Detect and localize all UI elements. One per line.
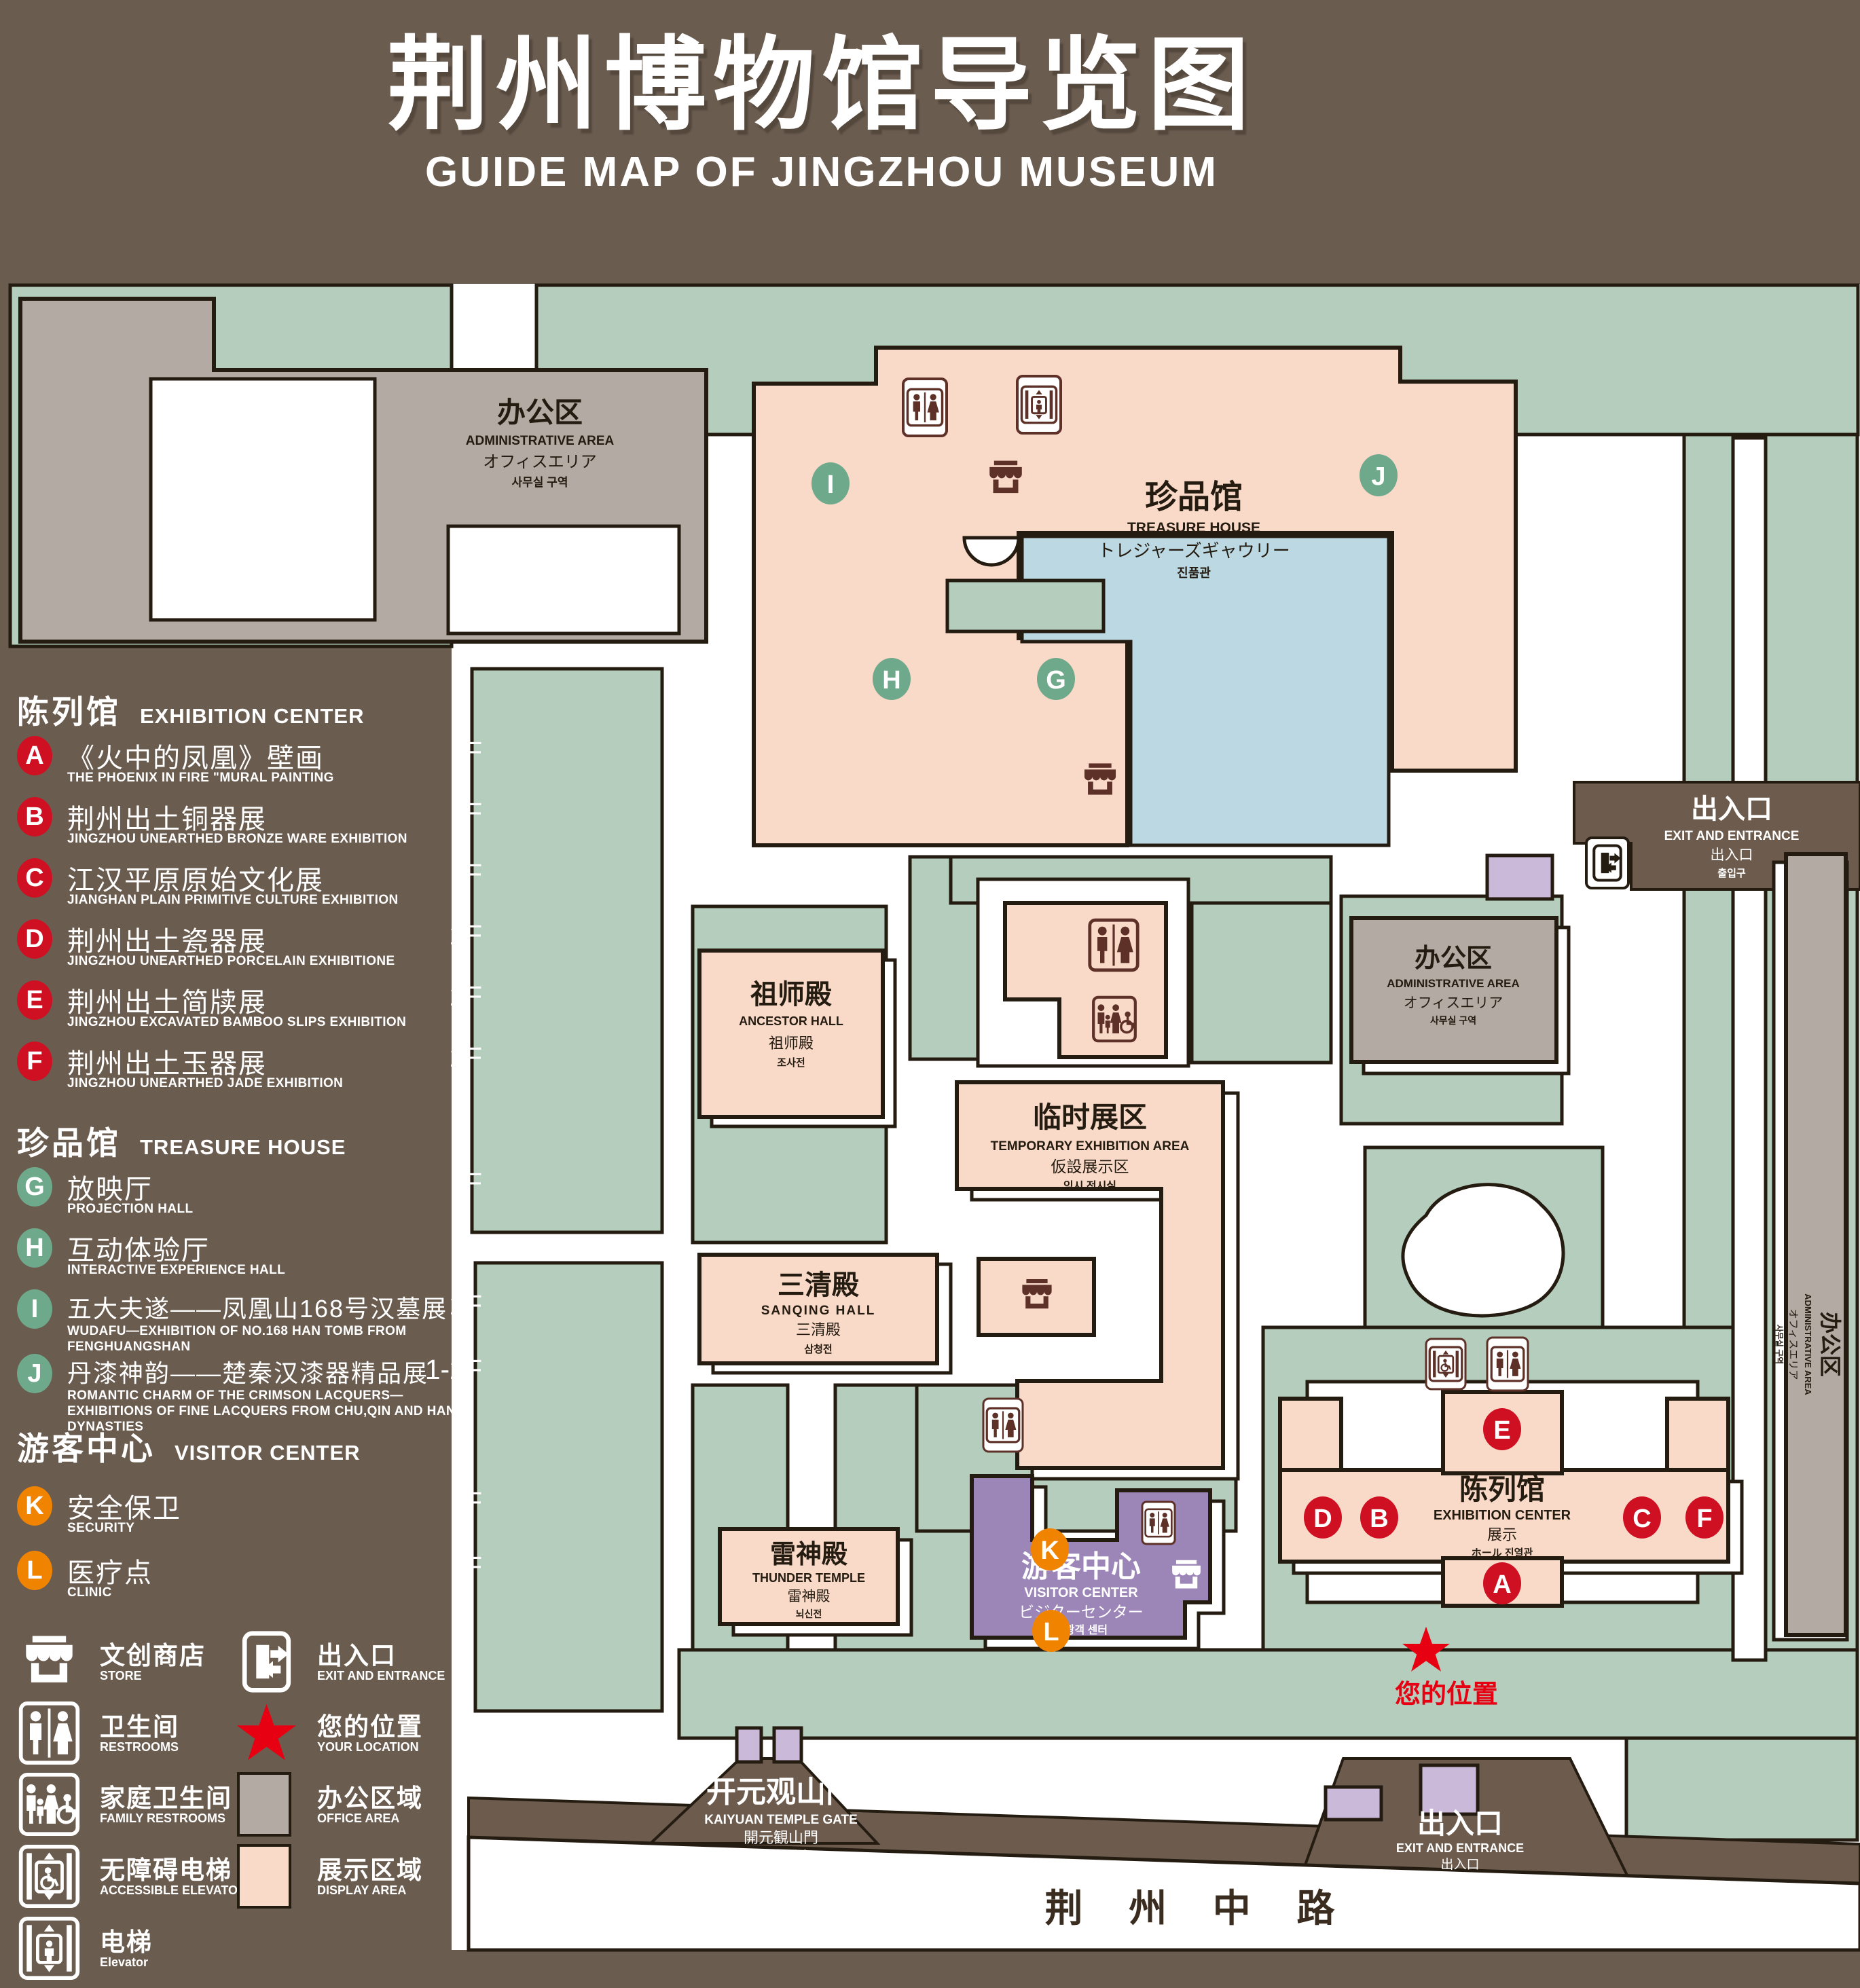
map-badge-A: A <box>1483 1562 1521 1604</box>
store-icon <box>17 1630 81 1694</box>
map-badge-K: K <box>1031 1528 1069 1570</box>
exit-bottom-label-kr: 출입구 <box>1448 1874 1472 1884</box>
map-badge-G: G <box>1037 658 1075 700</box>
exit-top-label-kr: 출입구 <box>1717 868 1746 879</box>
svg-text:H: H <box>882 666 900 695</box>
admin-tl-label-zh: 办公区 <box>497 397 583 428</box>
svg-text:F: F <box>1696 1505 1712 1533</box>
visitor-label-en: VISITOR CENTER <box>1024 1585 1138 1600</box>
page-title: 荆州博物馆导览图 <box>0 3 1643 150</box>
admin-tl-label-kr: 사무실 구역 <box>512 476 568 489</box>
thunder-label-en: THUNDER TEMPLE <box>752 1571 865 1585</box>
legend-item-G: G 放映厅 1F PROJECTION HALL <box>17 1171 482 1230</box>
legend-item-F: F 荆州出土玉器展 2F JINGZHOU UNEARTHED JADE EXH… <box>17 1046 482 1104</box>
svg-text:G: G <box>1046 666 1066 695</box>
building-admin-right: 办公区 ADMINISTRATIVE AREA オフィスエリア 사무실 구역 <box>1774 854 1847 1640</box>
temporary-label-en: TEMPORARY EXHIBITION AREA <box>991 1139 1190 1154</box>
admin-tl-label-en: ADMINISTRATIVE AREA <box>466 434 615 448</box>
thunder-label-zh: 雷神殿 <box>770 1541 847 1569</box>
pond-green-bar <box>947 581 1104 631</box>
building-ancestor-hall: 祖师殿 ANCESTOR HALL 祖师殿 조사전 <box>699 951 895 1126</box>
badge-A: A <box>17 736 52 775</box>
your-location-label: 您的位置 <box>1395 1680 1498 1709</box>
gate-label-jp: 開元観山門 <box>744 1829 818 1846</box>
building-admin-mid: 办公区 ADMINISTRATIVE AREA オフィスエリア 사무실 구역 <box>1351 918 1569 1073</box>
badge-J: J <box>17 1354 52 1393</box>
map-badge-F: F <box>1685 1496 1724 1539</box>
elevator-icon <box>17 1916 81 1981</box>
badge-E: E <box>17 980 52 1020</box>
family-restroom-icon <box>17 1772 81 1837</box>
exit-top-label-en: EXIT AND ENTRANCE <box>1664 829 1800 843</box>
green-left-column <box>472 669 662 1232</box>
legend-item-K: K 安全保卫 1F SECURITY <box>17 1490 482 1549</box>
map-badge-E: E <box>1483 1408 1521 1450</box>
svg-text:L: L <box>1043 1618 1059 1646</box>
green-bottom-right <box>1626 1738 1857 1840</box>
exit-top-label-jp: 出入口 <box>1711 847 1753 863</box>
legend-section-treasure-house: 珍品馆TREASURE HOUSE <box>17 1117 346 1164</box>
svg-text:A: A <box>1493 1570 1511 1599</box>
map-badge-L: L <box>1032 1610 1070 1652</box>
svg-text:K: K <box>1040 1536 1059 1565</box>
green-bottom-band <box>679 1650 1857 1738</box>
badge-H: H <box>17 1228 52 1268</box>
badge-F: F <box>17 1042 52 1081</box>
store-annex <box>979 1259 1094 1335</box>
gate-pillar-right <box>774 1728 801 1762</box>
exit-bottom-label-zh: 出入口 <box>1417 1807 1503 1839</box>
display-area-swatch <box>237 1844 291 1909</box>
exit-bottom-label-en: EXIT AND ENTRANCE <box>1396 1841 1524 1855</box>
exit-icon <box>234 1630 299 1694</box>
legend-item-L: L 医疗点 1F CLINIC <box>17 1555 482 1613</box>
elevator-icon <box>1017 376 1061 433</box>
gate-label-zh: 开元观山门 <box>706 1775 856 1809</box>
exit-top-label-zh: 出入口 <box>1691 794 1772 824</box>
treasure-label-jp: トレジャーズギャウリー <box>1097 540 1290 561</box>
thunder-label-jp: 雷神殿 <box>788 1589 831 1604</box>
map-badge-C: C <box>1623 1496 1661 1539</box>
temporary-label-kr: 임시 전시실 <box>1063 1180 1116 1192</box>
restroom-icon <box>903 379 947 436</box>
legend-item-B: B 荆州出土铜器展 1F JINGZHOU UNEARTHED BRONZE W… <box>17 801 482 860</box>
building-sanqing-hall: 三清殿 SANQING HALL 三清殿 삼청전 <box>699 1255 951 1373</box>
map-badge-H: H <box>873 658 911 700</box>
restroom-icon <box>1142 1502 1175 1544</box>
road-label: 荆 州 中 路 <box>1045 1887 1353 1930</box>
gate-label-en: KAIYUAN TEMPLE GATE <box>704 1813 858 1827</box>
ancestor-label-zh: 祖师殿 <box>750 980 832 1010</box>
map-badge-J: J <box>1360 454 1398 496</box>
legend-section-visitor-center: 游客中心VISITOR CENTER <box>17 1422 361 1469</box>
treasure-label-kr: 진품관 <box>1177 566 1211 580</box>
treasure-label-en: TREASURE HOUSE <box>1127 520 1260 536</box>
map-badge-B: B <box>1360 1496 1398 1539</box>
exit-top-building <box>1487 855 1552 899</box>
badge-D: D <box>17 919 52 959</box>
legend-item-A: A 《火中的凤凰》壁画 1F THE PHOENIX IN FIRE "MURA… <box>17 740 482 798</box>
green-center-right <box>1192 903 1331 1063</box>
exit-bottom-label-jp: 出入口 <box>1440 1857 1479 1872</box>
exhibition-label-line3: 展示 <box>1487 1526 1517 1543</box>
badge-C: C <box>17 858 52 898</box>
exit-bottom-building-left <box>1326 1787 1381 1820</box>
admin-mid-label-kr: 사무실 구역 <box>1430 1015 1476 1026</box>
ancestor-label-en: ANCESTOR HALL <box>739 1014 843 1028</box>
exhibition-label-line4: ホール 진열관 <box>1472 1547 1533 1559</box>
exhibition-label-zh: 陈列馆 <box>1459 1473 1545 1505</box>
restroom-icon <box>983 1399 1023 1452</box>
admin-right-label-kr: 사무실 구역 <box>1774 1325 1785 1365</box>
sanqing-label-kr: 삼청전 <box>804 1344 832 1355</box>
sanqing-label-jp: 三清殿 <box>796 1321 841 1338</box>
section-title-zh: 陈列馆 <box>17 694 121 730</box>
legend-item-E: E 荆州出土简牍展 2F JINGZHOU EXCAVATED BAMBOO S… <box>17 984 482 1043</box>
admin-mid-label-en: ADMINISTRATIVE AREA <box>1387 977 1520 990</box>
admin-mid-label-jp: オフィスエリア <box>1404 995 1503 1011</box>
ancestor-label-jp: 祖师殿 <box>769 1035 814 1052</box>
exhibition-label-en: EXHIBITION CENTER <box>1434 1508 1571 1523</box>
accessible-elevator-icon <box>17 1844 81 1909</box>
restroom-icon <box>1487 1338 1528 1391</box>
legend-item-J: J 丹漆神韵——楚秦汉漆器精品展 1-2F ROMANTIC CHARM OF … <box>17 1358 482 1416</box>
path-right-column <box>1733 438 1766 1660</box>
sanqing-label-en: SANQING HALL <box>761 1304 876 1318</box>
legend-item-H: H 互动体验厅 1F INTERACTIVE EXPERIENCE HALL <box>17 1232 482 1291</box>
sanqing-label-zh: 三清殿 <box>778 1270 859 1300</box>
legend-item-I: I 五大夫遂——凤凰山168号汉墓展 2F WUDAFU—EXHIBITION … <box>17 1293 482 1352</box>
thunder-label-kr: 뇌신전 <box>796 1608 822 1619</box>
page-subtitle: GUIDE MAP OF JINGZHOU MUSEUM <box>0 148 1643 196</box>
legend-item-D: D 荆州出土瓷器展 2F JINGZHOU UNEARTHED PORCELAI… <box>17 923 482 982</box>
legend-section-exhibition-center: 陈列馆EXHIBITION CENTER <box>17 686 364 733</box>
admin-right-label-jp: オフィスエリア <box>1787 1309 1799 1380</box>
treasure-label-zh: 珍品馆 <box>1145 479 1243 515</box>
badge-B: B <box>17 797 52 836</box>
temporary-label-zh: 临时展区 <box>1033 1101 1147 1133</box>
svg-text:C: C <box>1633 1505 1651 1533</box>
legend-item-C: C 江汉平原原始文化展 1F JIANGHAN PLAIN PRIMITIVE … <box>17 862 482 921</box>
map-badge-I: I <box>812 462 850 504</box>
svg-text:E: E <box>1493 1416 1510 1445</box>
section-title-en: EXHIBITION CENTER <box>140 704 364 728</box>
svg-text:J: J <box>1371 462 1385 491</box>
office-area-swatch <box>237 1772 291 1837</box>
admin-mid-label-zh: 办公区 <box>1415 944 1492 973</box>
badge-K: K <box>17 1486 52 1526</box>
admin-right-label-zh: 办公区 <box>1818 1312 1842 1377</box>
svg-text:B: B <box>1370 1505 1388 1533</box>
ancestor-label-kr: 조사전 <box>777 1057 805 1069</box>
restroom-icon <box>1087 910 1141 980</box>
temporary-label-jp: 仮設展示区 <box>1051 1158 1129 1175</box>
building-treasure-house: 珍品馆 TREASURE HOUSE トレジャーズギャウリー 진품관 <box>754 348 1516 845</box>
admin-tl-label-jp: オフィスエリア <box>483 453 597 471</box>
badge-L: L <box>17 1551 52 1590</box>
exit-icon <box>1586 838 1628 888</box>
badge-G: G <box>17 1167 52 1207</box>
location-star-icon <box>234 1701 299 1765</box>
accessible-elevator-icon <box>1426 1339 1465 1389</box>
badge-I: I <box>17 1289 52 1329</box>
admin-right-label-en: ADMINISTRATIVE AREA <box>1803 1293 1813 1395</box>
svg-text:I: I <box>827 471 835 499</box>
gate-label-kr: 산문을 열다 <box>754 1849 807 1862</box>
building-thunder-temple: 雷神殿 THUNDER TEMPLE 雷神殿 뇌신전 <box>720 1529 911 1635</box>
svg-text:D: D <box>1313 1505 1332 1533</box>
green-left-lower <box>475 1263 662 1711</box>
gate-pillar-left <box>737 1728 761 1762</box>
restroom-icon <box>17 1701 81 1765</box>
map-badge-D: D <box>1304 1496 1342 1539</box>
